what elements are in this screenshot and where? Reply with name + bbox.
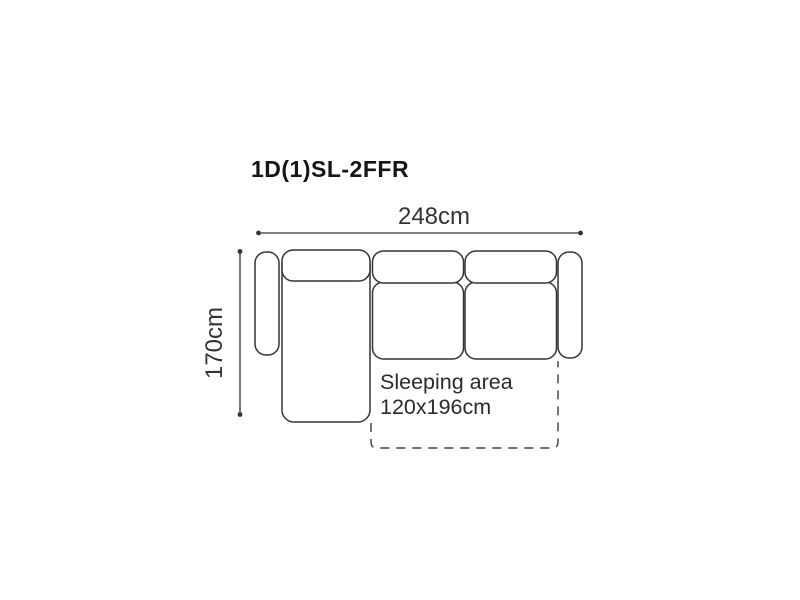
width-dimension-label: 248cm	[398, 203, 470, 230]
depth-dimension-label: 170cm	[201, 307, 228, 379]
sofa-seat-right	[465, 282, 557, 359]
sofa-dimension-diagram: 1D(1)SL-2FFR 248cm 170cm S	[0, 0, 800, 600]
sleeping-area-label-line2: 120x196cm	[380, 395, 491, 419]
width-dimension-line	[256, 231, 583, 236]
sleeping-area-label-line1: Sleeping area	[380, 370, 513, 394]
sofa-backrest-middle	[373, 251, 464, 283]
depth-dimension-line	[238, 249, 243, 417]
sofa-chaise-backrest	[282, 250, 370, 281]
sofa-left-armrest	[255, 252, 279, 355]
sofa-right-armrest	[558, 252, 582, 358]
sleeping-area-label: Sleeping area 120x196cm	[380, 370, 513, 419]
diagram-canvas: 1D(1)SL-2FFR 248cm 170cm S	[0, 0, 800, 600]
sofa-backrest-right	[465, 251, 557, 283]
product-title: 1D(1)SL-2FFR	[251, 156, 409, 182]
sofa-seat-middle	[373, 282, 464, 359]
